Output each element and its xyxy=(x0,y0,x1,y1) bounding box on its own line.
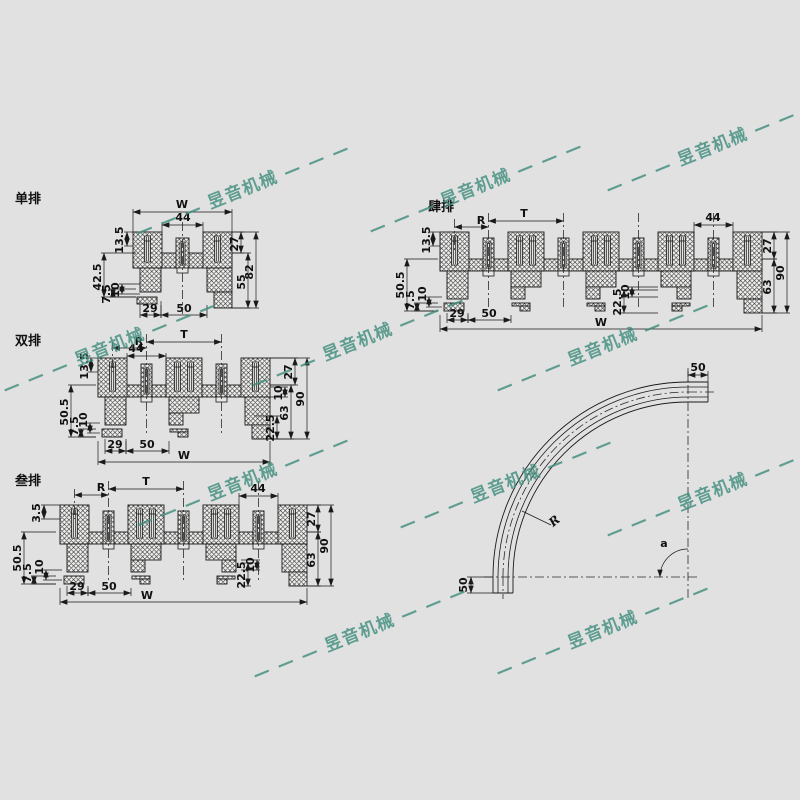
bolt-slot xyxy=(667,236,673,265)
profile-section xyxy=(105,397,126,425)
profile-section xyxy=(203,505,239,544)
profile-section xyxy=(166,358,202,397)
dim-label: 82 xyxy=(243,264,256,279)
bolt-slot xyxy=(680,236,686,265)
bolt-slot xyxy=(188,362,194,391)
dim-label: T xyxy=(180,328,188,341)
profile-section xyxy=(511,287,525,299)
profile-section xyxy=(140,579,150,584)
profile-section xyxy=(169,413,183,425)
profile-section xyxy=(744,299,762,313)
profile-section xyxy=(520,306,530,311)
dim-label: 3.5 xyxy=(30,503,43,523)
dim-label: 29 xyxy=(107,438,122,451)
profile-section xyxy=(222,560,236,572)
view-title-single: 单排 xyxy=(15,191,41,207)
profile-section xyxy=(102,429,122,437)
profile-section xyxy=(131,544,161,560)
view-title-triple: 叁排 xyxy=(14,473,41,489)
profile-section xyxy=(132,576,150,579)
dim-label: W xyxy=(595,316,607,329)
dim-label: W xyxy=(178,449,190,462)
bolt-slot xyxy=(517,236,523,265)
bolt-slot xyxy=(592,236,598,265)
dim-label: 10 xyxy=(109,282,122,298)
dim-label: 10 xyxy=(33,559,46,575)
profile-section xyxy=(511,271,541,287)
drawing-page: W44295013.527558242.57.510 TR442950W13.5… xyxy=(0,0,800,800)
bolt-slot xyxy=(290,509,296,538)
profile-section xyxy=(661,271,691,287)
bolt-slot xyxy=(605,236,611,265)
profile-section xyxy=(508,232,544,271)
dim-label: 50 xyxy=(139,438,155,451)
dim-label: T xyxy=(142,475,150,488)
dim-label: R xyxy=(97,481,106,494)
dim-label: 90 xyxy=(294,391,307,407)
dim-label: 13.5 xyxy=(113,226,126,253)
profile-section xyxy=(737,271,762,299)
dim-label: a xyxy=(660,537,667,550)
dim-label: 10 xyxy=(272,385,285,401)
dim-label: W xyxy=(141,589,153,602)
dim-label: 10 xyxy=(416,286,429,302)
profile-section xyxy=(512,303,530,306)
dim-label: 27 xyxy=(761,238,774,253)
profile-section xyxy=(217,576,235,579)
profile-section xyxy=(178,432,188,437)
dim-label: 90 xyxy=(774,265,787,281)
dim-label: T xyxy=(520,207,528,220)
profile-section xyxy=(131,560,145,572)
bolt-slot xyxy=(175,362,181,391)
profile-section xyxy=(169,397,199,413)
dim-label: 27 xyxy=(228,236,241,251)
profile-section xyxy=(587,303,605,306)
profile-section xyxy=(67,544,88,572)
dim-label: 63 xyxy=(305,552,318,567)
profile-section xyxy=(583,232,619,271)
profile-section xyxy=(658,232,694,271)
dim-label: 63 xyxy=(278,405,291,420)
dim-label: 29 xyxy=(142,302,157,315)
dim-label: 50 xyxy=(481,307,497,320)
dim-label: 22.5 xyxy=(611,288,624,315)
bolt-slot xyxy=(530,236,536,265)
bolt-slot xyxy=(215,236,221,262)
dim-label: 27 xyxy=(305,511,318,526)
profile-section xyxy=(595,306,605,311)
dim-label: 50 xyxy=(101,580,117,593)
dim-label: 50 xyxy=(690,361,706,374)
profile-section xyxy=(217,579,227,584)
dim-label: 63 xyxy=(761,279,774,294)
dim-label: 29 xyxy=(69,580,84,593)
dim-label: 22.5 xyxy=(235,561,248,588)
profile-section xyxy=(586,287,600,299)
profile-section xyxy=(207,268,232,292)
profile-section xyxy=(282,544,307,572)
profile-section xyxy=(170,429,188,432)
profile-section xyxy=(586,271,616,287)
dim-label: R xyxy=(477,214,486,227)
bolt-slot xyxy=(745,236,751,265)
view-title-double: 双排 xyxy=(15,333,41,349)
technical-drawing: W44295013.527558242.57.510 TR442950W13.5… xyxy=(0,0,800,800)
bolt-slot xyxy=(212,509,218,538)
bolt-slot xyxy=(225,509,231,538)
dim-label: 90 xyxy=(318,538,331,554)
dim-label: 13.5 xyxy=(420,226,433,253)
dim-label: 10 xyxy=(77,412,90,428)
profile-section xyxy=(677,287,691,299)
profile-section xyxy=(140,268,161,292)
profile-section xyxy=(206,544,236,560)
dim-label: 22.5 xyxy=(264,414,277,441)
profile-section xyxy=(289,572,307,586)
